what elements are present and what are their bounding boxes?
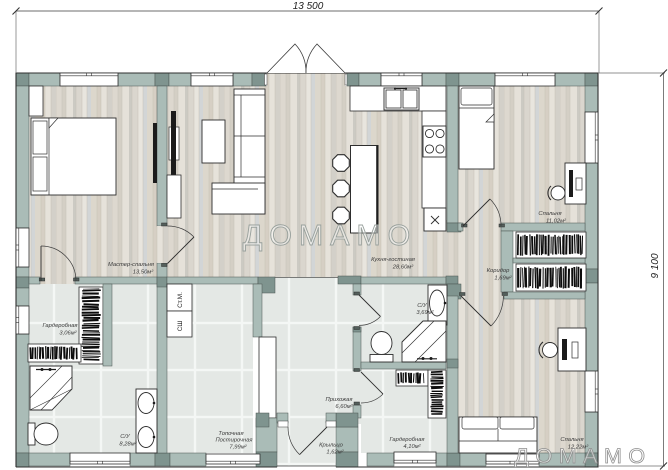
svg-text:СШ: СШ bbox=[177, 321, 184, 332]
svg-text:3,69м²: 3,69м² bbox=[416, 310, 434, 316]
svg-text:6,60м²: 6,60м² bbox=[335, 404, 353, 410]
svg-text:Кухня-гостиная: Кухня-гостиная bbox=[371, 257, 415, 263]
svg-text:8,28м²: 8,28м² bbox=[119, 442, 137, 448]
svg-text:Топочная: Топочная bbox=[218, 431, 243, 437]
svg-text:Спальня: Спальня bbox=[560, 437, 583, 443]
svg-text:Прихожая: Прихожая bbox=[326, 397, 353, 403]
svg-text:Крыльцо: Крыльцо bbox=[319, 443, 344, 449]
svg-text:Ст.М.: Ст.М. bbox=[177, 292, 184, 308]
svg-text:1,69м²: 1,69м² bbox=[494, 276, 512, 282]
svg-text:С/У: С/У bbox=[120, 434, 131, 440]
svg-text:Спальня: Спальня bbox=[538, 211, 561, 217]
svg-text:ДОМАМО: ДОМАМО bbox=[243, 220, 417, 252]
svg-text:1,62м²: 1,62м² bbox=[326, 450, 344, 456]
svg-text:ДОМАМО: ДОМАМО bbox=[514, 444, 651, 468]
svg-text:Гардеробная: Гардеробная bbox=[389, 437, 424, 443]
svg-text:3,06м²: 3,06м² bbox=[59, 331, 77, 337]
svg-text:Постирочная: Постирочная bbox=[215, 438, 252, 444]
svg-text:9 100: 9 100 bbox=[650, 253, 661, 278]
svg-text:Мастер-спальня: Мастер-спальня bbox=[108, 262, 154, 268]
svg-text:Гардеробная: Гардеробная bbox=[42, 323, 77, 329]
svg-text:11,02м²: 11,02м² bbox=[546, 219, 567, 225]
svg-text:13,50м²: 13,50м² bbox=[133, 270, 154, 276]
svg-text:С/У: С/У bbox=[417, 303, 428, 309]
svg-text:28,60м²: 28,60м² bbox=[392, 265, 414, 271]
svg-text:13 500: 13 500 bbox=[293, 1, 324, 12]
svg-text:Коридор: Коридор bbox=[487, 268, 511, 274]
svg-text:7,99м²: 7,99м² bbox=[229, 445, 247, 451]
svg-text:4,10м²: 4,10м² bbox=[403, 444, 421, 450]
